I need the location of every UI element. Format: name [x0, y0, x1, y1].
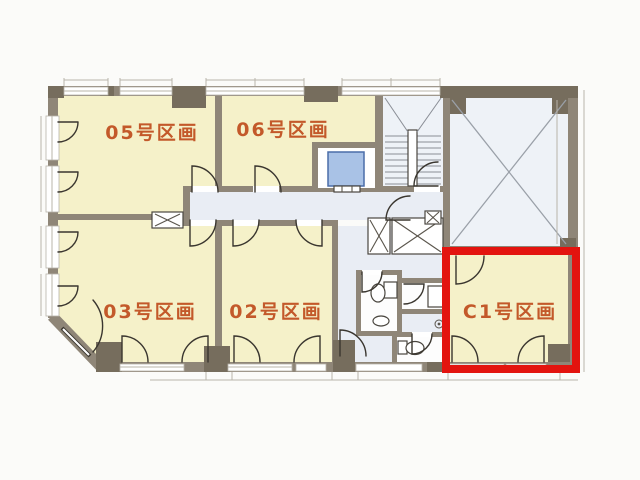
shaft-x-icon: [425, 211, 441, 224]
sink-icon: [373, 316, 389, 326]
elevator-icon: [318, 148, 375, 192]
elevator-car: [328, 152, 364, 186]
room-C1-label: C1号区画: [463, 301, 557, 323]
room-06-label: 06号区画: [236, 119, 329, 141]
room-02-area: [222, 226, 332, 362]
shaft-x-icon: [368, 218, 390, 254]
floorplan-image: 05号区画 06号区画 03号区画 02号区画 C1号区画: [0, 0, 640, 480]
room-02-label: 02号区画: [229, 301, 322, 323]
floorplan-svg: 05号区画 06号区画 03号区画 02号区画 C1号区画: [0, 0, 640, 480]
room-05-label: 05号区画: [105, 122, 198, 144]
shaft-x-icon: [152, 212, 183, 228]
room-03-label: 03号区画: [103, 301, 196, 323]
vanity-icon: [428, 286, 443, 307]
